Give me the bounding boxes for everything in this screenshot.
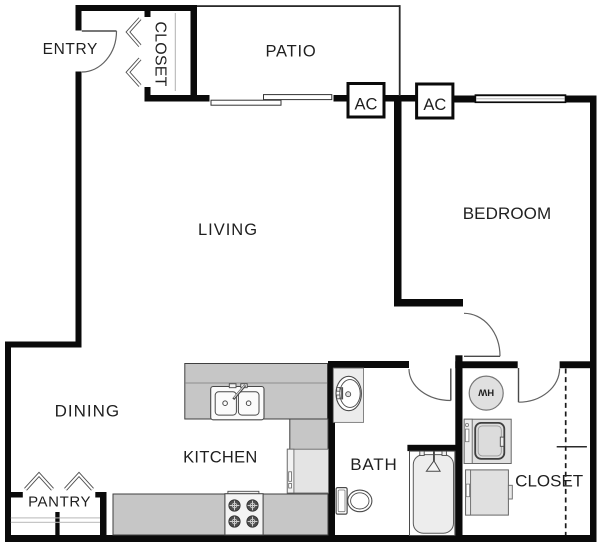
svg-text:AC: AC xyxy=(423,96,446,114)
svg-text:CLOSET: CLOSET xyxy=(151,21,168,86)
svg-text:DINING: DINING xyxy=(55,402,121,421)
svg-text:ENTRY: ENTRY xyxy=(43,41,98,58)
svg-text:KITCHEN: KITCHEN xyxy=(183,448,258,466)
svg-text:BATH: BATH xyxy=(350,455,397,474)
svg-text:LIVING: LIVING xyxy=(198,221,258,239)
svg-text:AC: AC xyxy=(355,96,378,114)
svg-text:BEDROOM: BEDROOM xyxy=(463,204,552,223)
svg-text:PATIO: PATIO xyxy=(265,43,316,61)
svg-text:HW: HW xyxy=(478,387,494,398)
svg-text:CLOSET: CLOSET xyxy=(515,472,583,491)
svg-text:PANTRY: PANTRY xyxy=(28,493,91,510)
